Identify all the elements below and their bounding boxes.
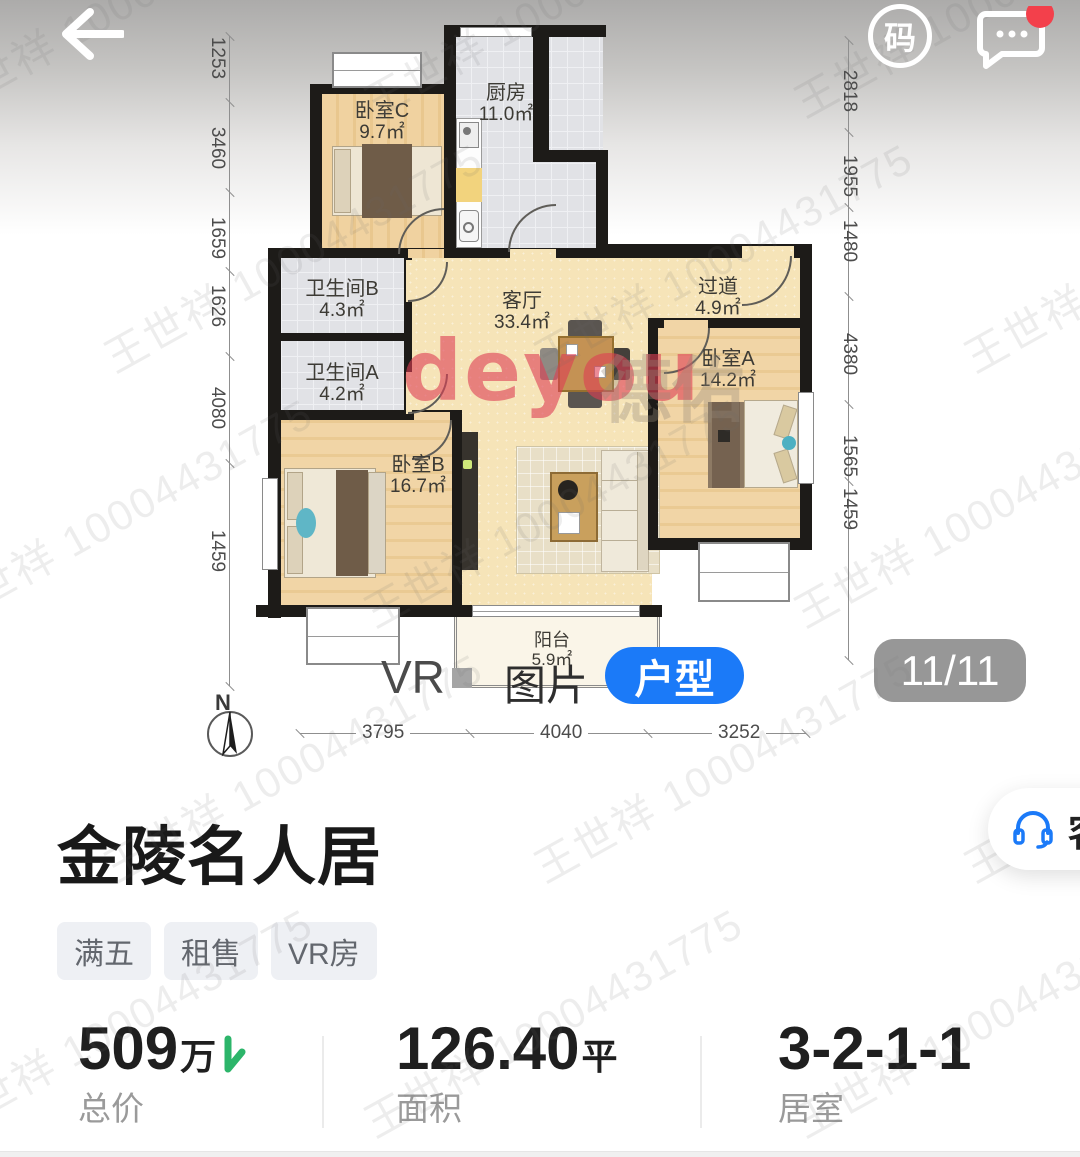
tray xyxy=(558,512,580,534)
chat-button[interactable] xyxy=(976,6,1054,77)
kettle xyxy=(558,480,578,500)
qr-icon: 码 xyxy=(884,13,916,59)
room-label: 厨房 11.0㎡ xyxy=(446,82,566,126)
tag: VR房 xyxy=(271,922,377,980)
room-label: 卧室C 9.7㎡ xyxy=(322,100,442,144)
dimension: 1659 xyxy=(206,217,228,259)
chat-bubble-icon xyxy=(976,6,1054,72)
dimension: 1459 xyxy=(206,530,228,572)
dimension: 1565 xyxy=(838,435,860,477)
stove xyxy=(459,122,479,148)
customer-service-button[interactable]: 客 xyxy=(988,788,1080,870)
bed-blanket xyxy=(362,144,412,218)
dimension: 1253 xyxy=(206,37,228,79)
bottom-divider xyxy=(0,1151,1080,1157)
stat-rooms: 3-2-1-1 xyxy=(778,1014,971,1083)
bed-accent xyxy=(782,436,796,450)
wall xyxy=(596,150,608,258)
window xyxy=(798,392,814,484)
tag: 租售 xyxy=(164,922,258,980)
sink-bowl xyxy=(463,222,474,233)
wall xyxy=(452,410,462,617)
stat-price: 509 万 xyxy=(78,1014,246,1083)
wall xyxy=(444,25,456,258)
stat-area: 126.40 平 xyxy=(396,1014,618,1083)
tag: 满五 xyxy=(57,922,151,980)
divider xyxy=(322,1036,324,1128)
dimension: 3460 xyxy=(206,127,228,169)
brand-watermark-cn: 德佑 xyxy=(600,332,744,437)
tab-photos[interactable]: 图片 xyxy=(504,652,588,713)
room-label: 卫生间A 4.2㎡ xyxy=(282,362,402,406)
bay-window xyxy=(332,52,422,88)
tab-vr[interactable]: VR xyxy=(381,650,445,704)
stat-rooms-label: 居室 xyxy=(778,1082,844,1130)
tab-floorplan[interactable]: 户型 xyxy=(605,647,744,704)
back-button[interactable] xyxy=(58,6,124,67)
balcony-door xyxy=(472,605,640,617)
sofa-seam xyxy=(602,510,638,511)
notification-dot xyxy=(1026,6,1054,28)
dimension: 2818 xyxy=(838,70,860,112)
dimension-line xyxy=(229,36,230,686)
dimension: 1626 xyxy=(206,285,228,327)
bed-pillows xyxy=(334,149,351,213)
dimension: 4040 xyxy=(534,722,588,744)
bay-window xyxy=(698,542,790,602)
dimension: 1480 xyxy=(838,220,860,262)
room-label: 过道 4.9㎡ xyxy=(658,276,778,320)
headset-icon xyxy=(1012,809,1054,849)
wall xyxy=(310,84,322,258)
listing-title: 金陵名人居 xyxy=(57,806,382,898)
room-label: 卧室B 16.7㎡ xyxy=(358,454,478,498)
price-down-icon xyxy=(220,1035,246,1077)
tag-list: 满五 租售 VR房 xyxy=(57,922,377,980)
dimension: 1459 xyxy=(838,488,860,530)
burner xyxy=(463,127,471,135)
back-arrow-icon xyxy=(58,6,124,62)
window xyxy=(460,27,532,37)
image-pager-badge: 11/11 xyxy=(874,639,1026,702)
dimension: 3252 xyxy=(712,722,766,744)
app-screen: 码 xyxy=(0,0,1080,1157)
floorplan-image[interactable]: 卧室C 9.7㎡ 厨房 11.0㎡ 卫生间B 4.3㎡ 卫生间A 4.2㎡ 客厅… xyxy=(0,0,1080,1157)
bed-accent xyxy=(296,508,316,538)
sofa-seam xyxy=(602,540,638,541)
service-label: 客 xyxy=(1068,802,1080,857)
divider xyxy=(700,1036,702,1128)
sofa-seam xyxy=(602,480,638,481)
wall xyxy=(268,333,404,341)
compass-icon xyxy=(204,706,256,762)
stat-area-label: 面积 xyxy=(396,1082,462,1130)
sofa-back xyxy=(637,452,648,570)
window xyxy=(262,478,278,570)
dimension: 4080 xyxy=(206,387,228,429)
stat-price-label: 总价 xyxy=(78,1082,144,1130)
counter-top xyxy=(456,168,482,202)
qr-code-button[interactable]: 码 xyxy=(868,4,932,68)
dimension: 3795 xyxy=(356,722,410,744)
balcony-pillar xyxy=(452,668,472,688)
room-label: 卫生间B 4.3㎡ xyxy=(282,278,402,322)
dimension: 4380 xyxy=(838,333,860,375)
dimension: 1955 xyxy=(838,155,860,197)
